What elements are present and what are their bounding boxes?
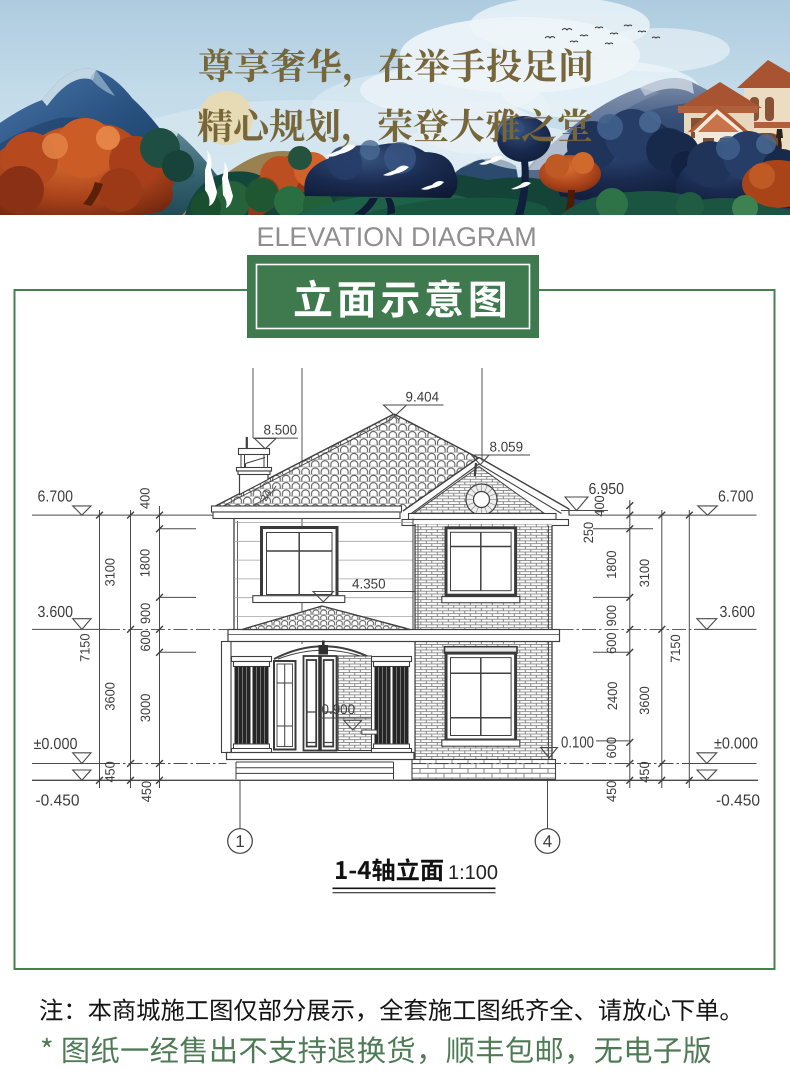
svg-text:600: 600 [138, 630, 153, 651]
svg-text:900: 900 [604, 605, 619, 626]
svg-text:600: 600 [604, 633, 619, 654]
svg-text:3100: 3100 [637, 559, 652, 587]
svg-text:3600: 3600 [637, 686, 652, 714]
svg-text:1: 1 [235, 832, 244, 851]
svg-text:0.100: 0.100 [561, 735, 594, 752]
svg-text:3.600: 3.600 [720, 604, 756, 621]
svg-text:3100: 3100 [103, 558, 118, 586]
svg-text:±0.000: ±0.000 [34, 736, 78, 753]
svg-text:4.350: 4.350 [352, 576, 386, 592]
svg-text:-0.450: -0.450 [36, 793, 80, 810]
svg-text:400: 400 [592, 495, 607, 516]
svg-text:8.059: 8.059 [490, 439, 524, 455]
svg-text:450: 450 [637, 761, 652, 782]
svg-text:0.900: 0.900 [322, 701, 356, 717]
svg-text:9.404: 9.404 [406, 389, 440, 405]
svg-text:1:100: 1:100 [448, 862, 498, 884]
svg-text:ELEVATION DIAGRAM: ELEVATION DIAGRAM [257, 222, 538, 252]
svg-text:4: 4 [543, 832, 552, 851]
svg-text:7150: 7150 [668, 634, 683, 662]
svg-text:3600: 3600 [103, 682, 118, 710]
svg-text:1800: 1800 [138, 549, 153, 577]
svg-text:600: 600 [604, 737, 619, 758]
svg-text:7150: 7150 [78, 634, 93, 662]
svg-text:450: 450 [139, 781, 154, 802]
svg-text:-0.450: -0.450 [716, 793, 760, 810]
svg-text:6.700: 6.700 [718, 489, 754, 506]
svg-text:900: 900 [138, 603, 153, 624]
svg-text:6.700: 6.700 [38, 489, 74, 506]
svg-text:3000: 3000 [138, 694, 153, 722]
svg-text:450: 450 [604, 781, 619, 802]
svg-text:1800: 1800 [604, 551, 619, 579]
svg-text:250: 250 [581, 522, 596, 543]
svg-text:3.600: 3.600 [38, 604, 74, 621]
svg-text:450: 450 [103, 761, 118, 782]
svg-text:400: 400 [138, 488, 153, 509]
svg-text:2400: 2400 [605, 682, 620, 710]
svg-text:8.500: 8.500 [264, 422, 298, 438]
svg-text:±0.000: ±0.000 [714, 736, 758, 753]
